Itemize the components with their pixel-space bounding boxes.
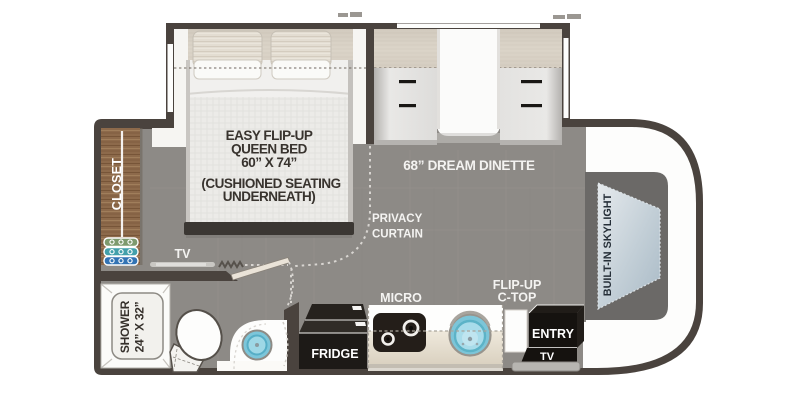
svg-text:FRIDGE: FRIDGE <box>311 347 358 361</box>
svg-text:60” X 74”: 60” X 74” <box>241 155 297 170</box>
svg-text:68” DREAM DINETTE: 68” DREAM DINETTE <box>403 158 535 173</box>
svg-text:TV: TV <box>540 351 555 363</box>
svg-text:CLOSET: CLOSET <box>110 158 124 211</box>
svg-text:CURTAIN: CURTAIN <box>372 229 423 241</box>
svg-text:SHOWER: SHOWER <box>118 300 132 353</box>
svg-text:C-TOP: C-TOP <box>498 291 537 305</box>
svg-text:UNDERNEATH): UNDERNEATH) <box>223 189 316 204</box>
svg-text:BUILT-IN SKYLIGHT: BUILT-IN SKYLIGHT <box>602 193 614 296</box>
svg-text:24” X 32”: 24” X 32” <box>133 301 147 352</box>
svg-text:TV: TV <box>175 247 192 261</box>
svg-text:MICRO: MICRO <box>380 291 422 305</box>
svg-text:ENTRY: ENTRY <box>532 327 575 341</box>
svg-text:PRIVACY: PRIVACY <box>372 213 423 225</box>
